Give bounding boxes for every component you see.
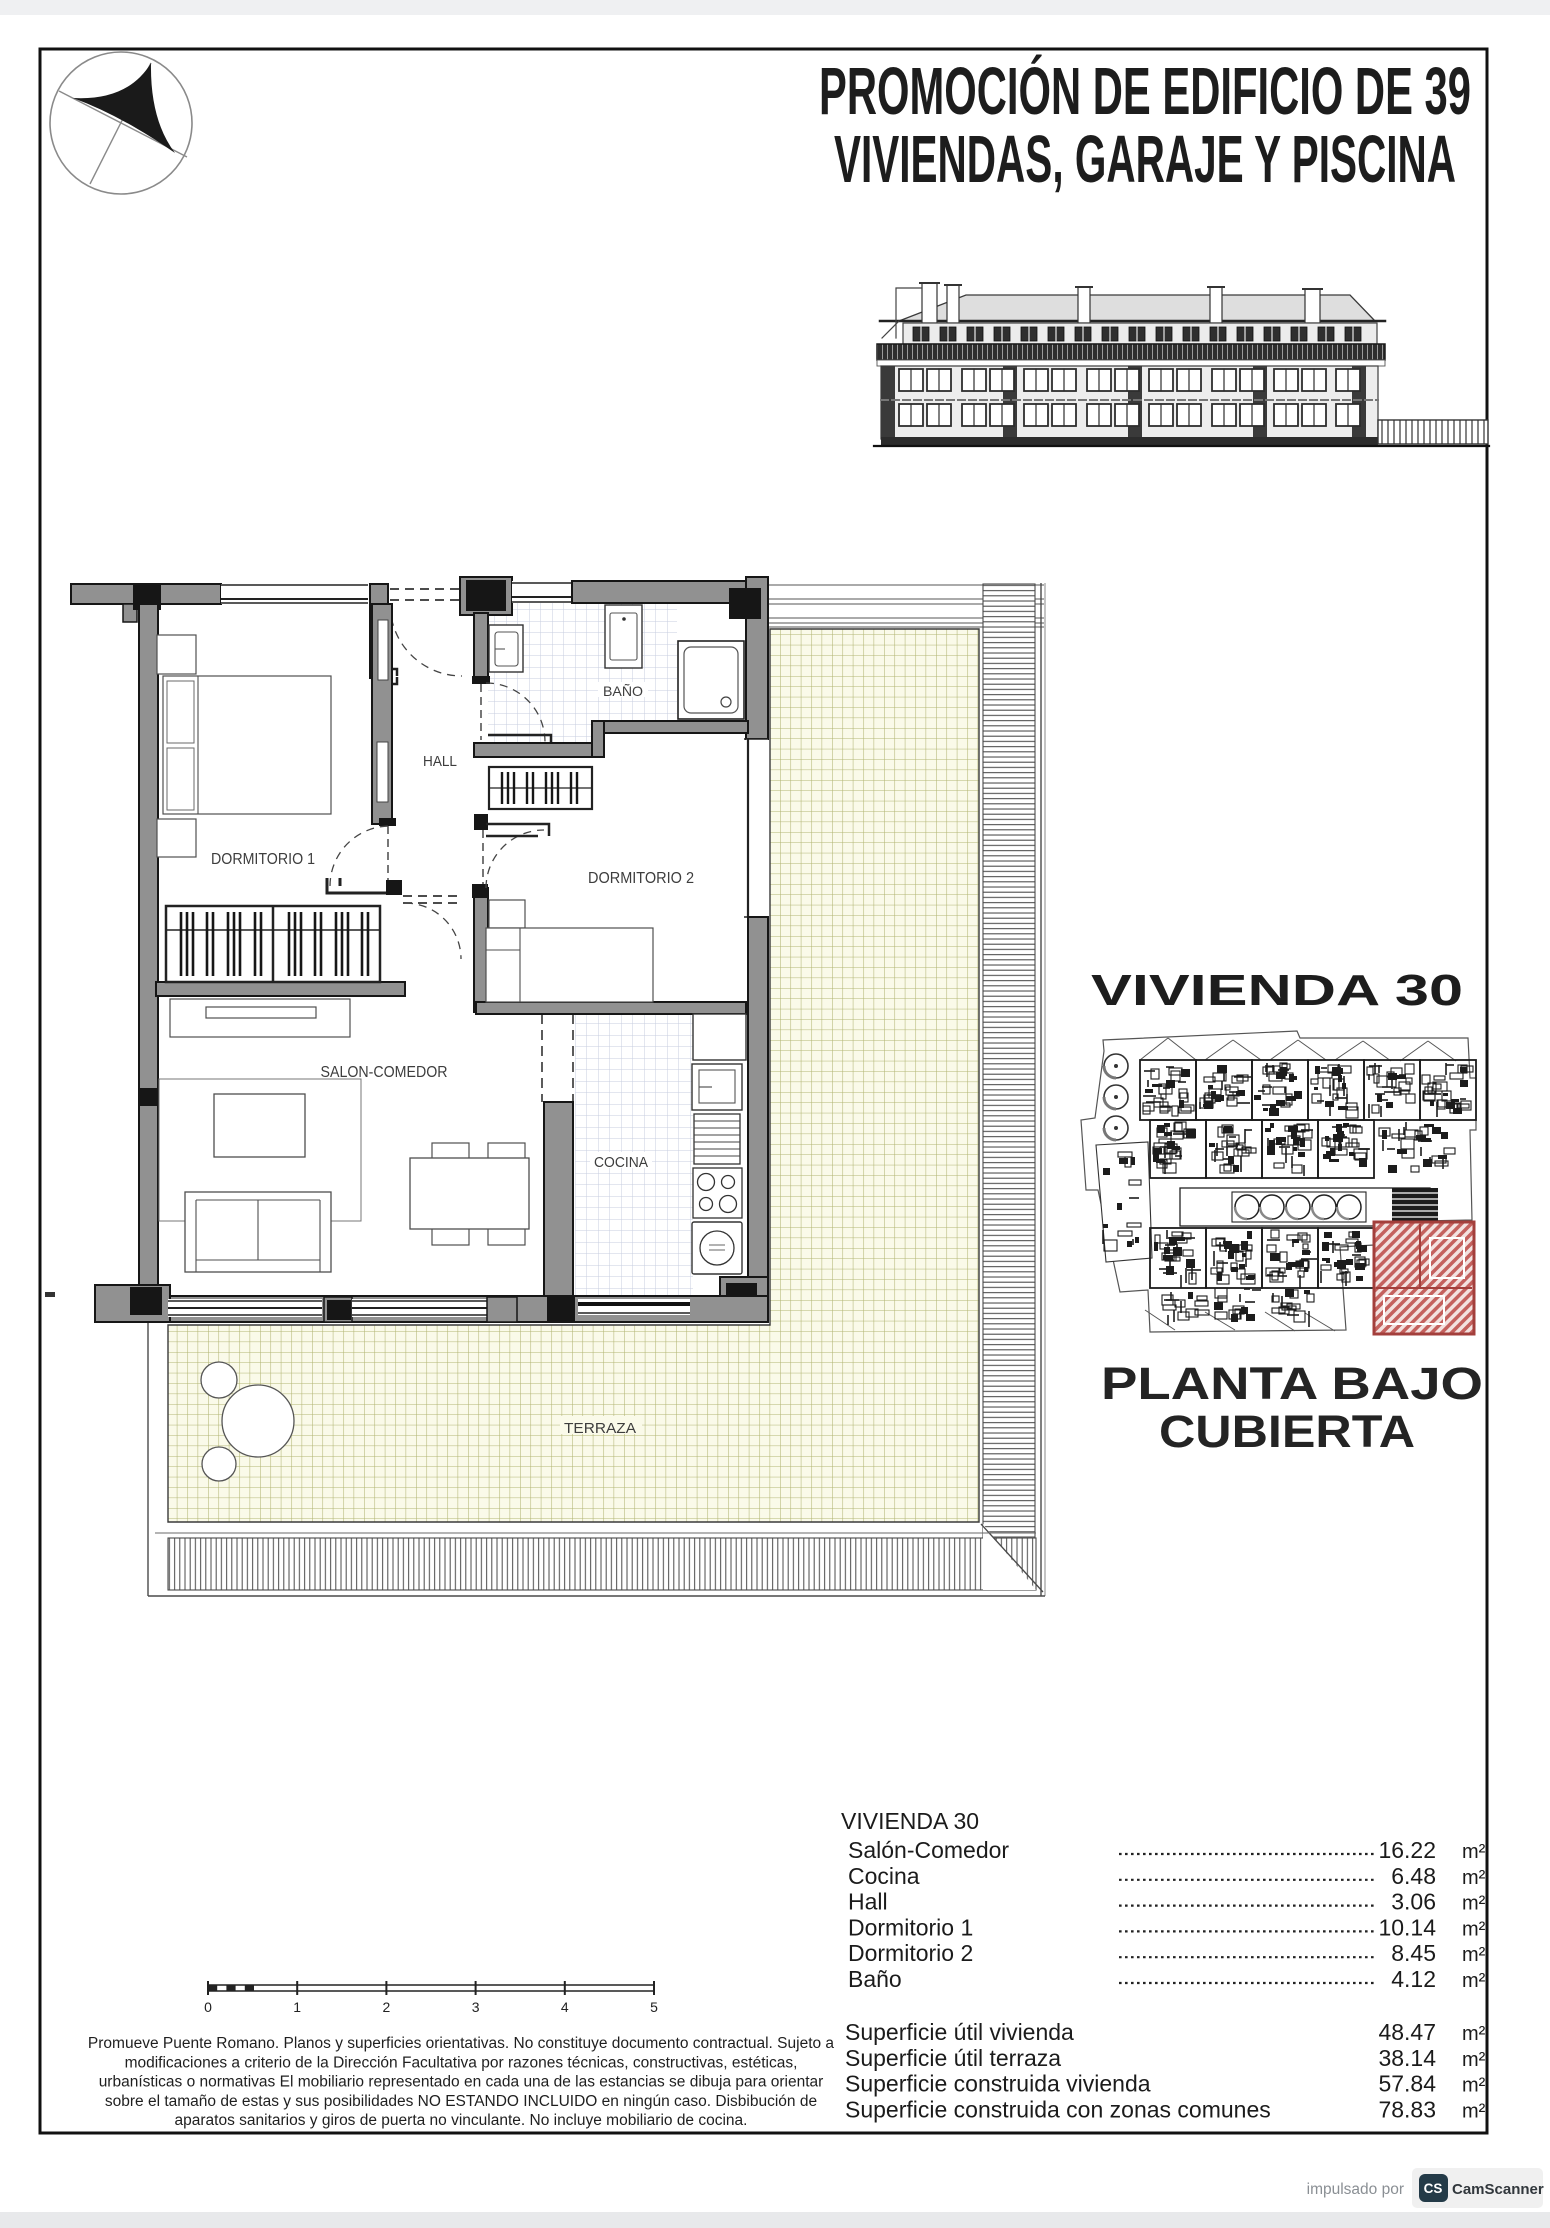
svg-text:78.83: 78.83 xyxy=(1378,2096,1436,2122)
svg-text:m²: m² xyxy=(1462,2100,1486,2122)
svg-text:modificaciones a criterio de l: modificaciones a criterio de la Direcció… xyxy=(125,2054,798,2071)
svg-text:PROMOCIÓN DE EDIFICIO DE 39: PROMOCIÓN DE EDIFICIO DE 39 xyxy=(819,54,1471,129)
svg-text:COCINA: COCINA xyxy=(594,1155,648,1171)
svg-text:sobre el tamaño de estas y sus: sobre el tamaño de estas y sus posibilid… xyxy=(105,2093,817,2110)
svg-text:Hall: Hall xyxy=(848,1889,888,1915)
svg-text:TERRAZA: TERRAZA xyxy=(564,1420,636,1437)
svg-text:HALL: HALL xyxy=(423,754,457,770)
svg-text:VIVIENDA 30: VIVIENDA 30 xyxy=(1091,966,1463,1015)
svg-text:DORMITORIO 2: DORMITORIO 2 xyxy=(588,870,694,887)
svg-text:4: 4 xyxy=(561,1999,569,2015)
svg-text:Promueve Puente Romano. Planos: Promueve Puente Romano. Planos y superfi… xyxy=(88,2035,835,2052)
svg-text:Superficie construida con zona: Superficie construida con zonas comunes xyxy=(845,2096,1271,2122)
svg-text:VIVIENDAS, GARAJE Y PISCINA: VIVIENDAS, GARAJE Y PISCINA xyxy=(834,122,1456,197)
svg-text:Baño: Baño xyxy=(848,1966,902,1992)
svg-text:Dormitorio 1: Dormitorio 1 xyxy=(848,1914,973,1940)
svg-text:CUBIERTA: CUBIERTA xyxy=(1159,1406,1415,1457)
svg-text:m²: m² xyxy=(1462,1841,1486,1863)
svg-text:5: 5 xyxy=(650,1999,658,2015)
svg-text:urbanísticas o normativas El m: urbanísticas o normativas El mobiliario … xyxy=(99,2074,824,2091)
svg-text:Dormitorio 2: Dormitorio 2 xyxy=(848,1940,973,1966)
svg-text:impulsado por: impulsado por xyxy=(1307,2181,1404,2198)
svg-text:BAÑO: BAÑO xyxy=(603,683,643,699)
svg-text:0: 0 xyxy=(204,1999,212,2015)
svg-text:m²: m² xyxy=(1462,1918,1486,1940)
svg-text:DORMITORIO 1: DORMITORIO 1 xyxy=(211,851,315,868)
svg-text:SALON-COMEDOR: SALON-COMEDOR xyxy=(321,1064,448,1081)
svg-text:m²: m² xyxy=(1462,2075,1486,2097)
svg-text:38.14: 38.14 xyxy=(1378,2045,1436,2071)
svg-text:Superficie construida vivienda: Superficie construida vivienda xyxy=(845,2071,1151,2097)
svg-text:2: 2 xyxy=(383,1999,391,2015)
svg-text:VIVIENDA 30: VIVIENDA 30 xyxy=(841,1808,979,1834)
svg-text:m²: m² xyxy=(1462,2049,1486,2071)
svg-text:CS: CS xyxy=(1424,2181,1443,2196)
svg-text:m²: m² xyxy=(1462,2023,1486,2045)
svg-text:Salón-Comedor: Salón-Comedor xyxy=(848,1837,1009,1863)
svg-text:Superficie útil vivienda: Superficie útil vivienda xyxy=(845,2019,1074,2045)
svg-text:16.22: 16.22 xyxy=(1378,1837,1436,1863)
svg-text:m²: m² xyxy=(1462,1893,1486,1915)
svg-text:PLANTA BAJO: PLANTA BAJO xyxy=(1101,1358,1483,1409)
svg-text:m²: m² xyxy=(1462,1867,1486,1889)
svg-text:3: 3 xyxy=(472,1999,480,2015)
svg-text:1: 1 xyxy=(293,1999,301,2015)
svg-text:57.84: 57.84 xyxy=(1378,2071,1436,2097)
svg-text:8.45: 8.45 xyxy=(1391,1940,1436,1966)
svg-text:4.12: 4.12 xyxy=(1391,1966,1436,1992)
svg-text:m²: m² xyxy=(1462,1944,1486,1966)
svg-text:CamScanner: CamScanner xyxy=(1452,2181,1544,2198)
svg-text:m²: m² xyxy=(1462,1970,1486,1992)
svg-text:10.14: 10.14 xyxy=(1378,1914,1436,1940)
svg-text:Superficie útil terraza: Superficie útil terraza xyxy=(845,2045,1061,2071)
svg-text:Cocina: Cocina xyxy=(848,1863,920,1889)
svg-text:3.06: 3.06 xyxy=(1391,1889,1436,1915)
svg-text:48.47: 48.47 xyxy=(1378,2019,1436,2045)
svg-text:6.48: 6.48 xyxy=(1391,1863,1436,1889)
svg-text:aparatos sanitarios y giros de: aparatos sanitarios y giros de puerta no… xyxy=(175,2112,748,2129)
